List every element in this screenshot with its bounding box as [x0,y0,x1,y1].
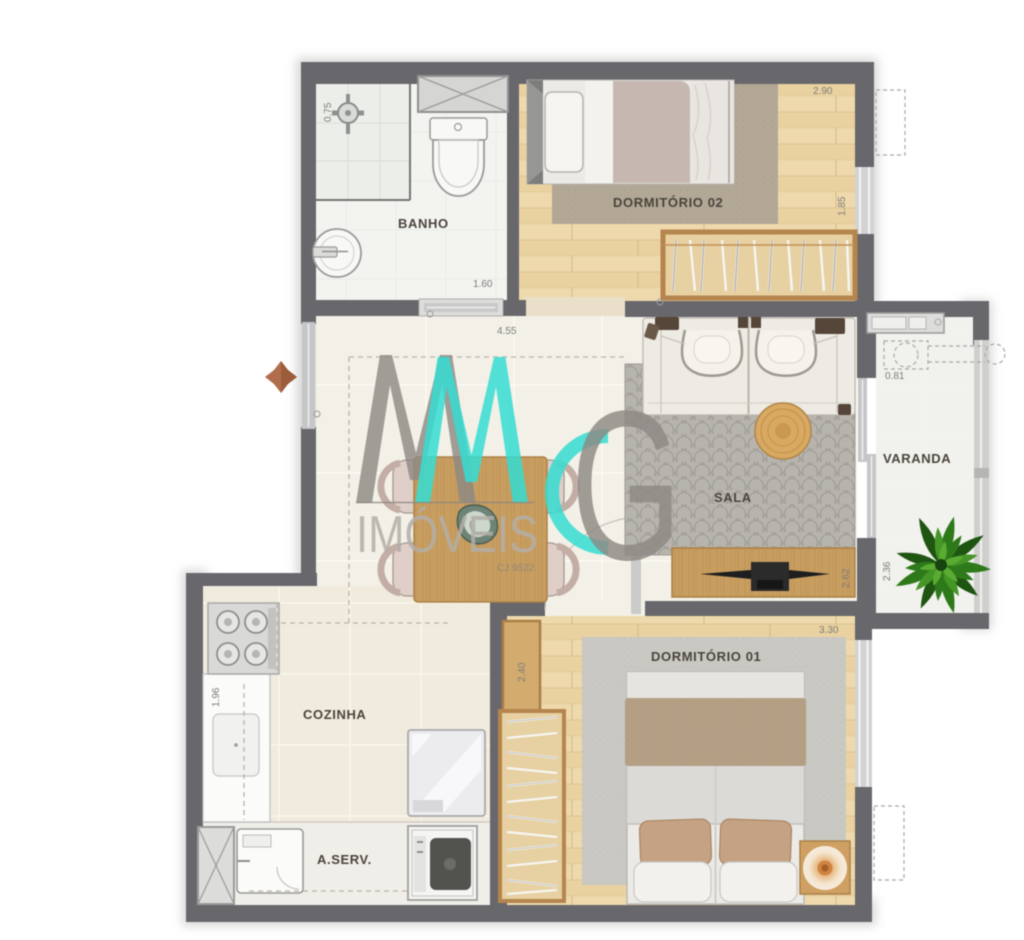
svg-text:SALA: SALA [714,490,752,505]
svg-text:3.30: 3.30 [819,625,839,636]
svg-text:2.40: 2.40 [517,662,528,682]
svg-text:CJ 9522: CJ 9522 [497,563,535,574]
svg-text:1.85: 1.85 [837,196,848,216]
svg-text:COZINHA: COZINHA [303,707,366,722]
svg-text:1.60: 1.60 [473,279,493,290]
svg-text:2.62: 2.62 [841,568,852,588]
svg-text:4.55: 4.55 [497,326,517,337]
svg-text:G: G [571,368,683,605]
svg-text:2.36: 2.36 [882,561,893,581]
svg-text:DORMITÓRIO 01: DORMITÓRIO 01 [651,649,761,664]
svg-text:1.96: 1.96 [211,687,222,707]
svg-text:DORMITÓRIO 02: DORMITÓRIO 02 [613,195,723,210]
svg-text:VARANDA: VARANDA [883,451,951,466]
svg-text:BANHO: BANHO [398,216,449,231]
svg-text:0.81: 0.81 [885,371,905,382]
svg-text:2.90: 2.90 [813,86,833,97]
svg-text:IMÓVEIS: IMÓVEIS [356,505,538,563]
svg-text:0.75: 0.75 [323,102,334,122]
svg-text:A.SERV.: A.SERV. [317,852,372,867]
